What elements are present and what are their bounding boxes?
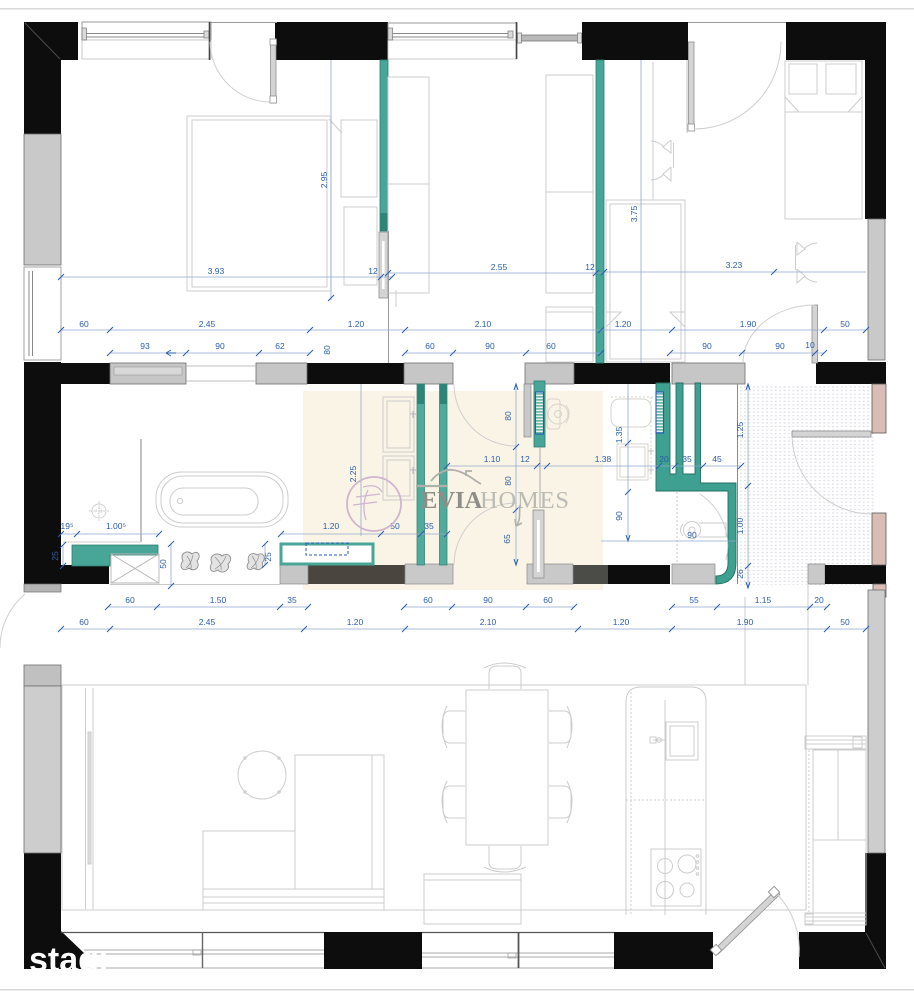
svg-text:12: 12: [585, 262, 595, 272]
svg-text:20: 20: [659, 454, 669, 464]
svg-text:25: 25: [50, 551, 60, 561]
svg-text:2.10: 2.10: [475, 319, 492, 329]
svg-text:1.35: 1.35: [614, 426, 624, 443]
svg-text:1.20: 1.20: [615, 319, 632, 329]
svg-text:1.50: 1.50: [210, 595, 227, 605]
svg-text:3.75: 3.75: [629, 205, 639, 222]
svg-text:62: 62: [275, 341, 285, 351]
svg-text:1.10: 1.10: [484, 454, 501, 464]
svg-text:1.90: 1.90: [737, 617, 754, 627]
svg-text:1.25: 1.25: [735, 421, 745, 438]
svg-text:1.38: 1.38: [595, 454, 612, 464]
svg-text:2.25: 2.25: [348, 465, 358, 482]
svg-text:60: 60: [543, 595, 553, 605]
svg-text:26: 26: [735, 569, 745, 579]
svg-text:90: 90: [483, 595, 493, 605]
svg-text:80: 80: [503, 476, 513, 486]
svg-text:93: 93: [140, 341, 150, 351]
svg-text:2.45: 2.45: [199, 617, 216, 627]
svg-text:1.90: 1.90: [740, 319, 757, 329]
svg-text:HOMES: HOMES: [480, 487, 570, 514]
svg-text:1.20: 1.20: [348, 319, 365, 329]
svg-text:50: 50: [390, 521, 400, 531]
svg-text:EVIA: EVIA: [421, 487, 483, 514]
svg-text:90: 90: [614, 511, 624, 521]
svg-text:60: 60: [546, 341, 556, 351]
svg-text:3.23: 3.23: [726, 260, 743, 270]
svg-text:19⁵: 19⁵: [61, 521, 74, 531]
svg-text:90: 90: [485, 341, 495, 351]
svg-text:35: 35: [682, 454, 692, 464]
svg-text:35: 35: [424, 521, 434, 531]
svg-text:60: 60: [125, 595, 135, 605]
svg-text:50: 50: [158, 559, 168, 569]
svg-text:50: 50: [840, 617, 850, 627]
svg-text:2.95: 2.95: [319, 171, 329, 188]
svg-text:50: 50: [840, 319, 850, 329]
svg-text:10: 10: [805, 340, 815, 350]
svg-text:90: 90: [687, 530, 697, 540]
svg-text:2.45: 2.45: [199, 319, 216, 329]
svg-text:stagi: stagi: [29, 941, 108, 979]
svg-text:3.93: 3.93: [208, 266, 225, 276]
svg-text:80: 80: [322, 345, 332, 355]
svg-text:60: 60: [423, 595, 433, 605]
svg-text:60: 60: [79, 319, 89, 329]
svg-text:1.00⁵: 1.00⁵: [106, 521, 126, 531]
svg-text:2.10: 2.10: [480, 617, 497, 627]
svg-text:1.15: 1.15: [755, 595, 772, 605]
svg-text:55: 55: [689, 595, 699, 605]
svg-text:90: 90: [215, 341, 225, 351]
svg-text:65: 65: [502, 534, 512, 544]
svg-text:90: 90: [775, 341, 785, 351]
svg-text:12: 12: [520, 454, 530, 464]
svg-text:1.00: 1.00: [735, 517, 745, 534]
svg-text:1.20: 1.20: [323, 521, 340, 531]
svg-text:35: 35: [287, 595, 297, 605]
svg-text:90: 90: [702, 341, 712, 351]
svg-text:25: 25: [263, 552, 273, 562]
svg-text:20: 20: [814, 595, 824, 605]
svg-text:60: 60: [79, 617, 89, 627]
svg-text:1.20: 1.20: [347, 617, 364, 627]
svg-text:60: 60: [425, 341, 435, 351]
svg-text:2.55: 2.55: [491, 262, 508, 272]
svg-text:12: 12: [368, 266, 378, 276]
svg-text:1.20: 1.20: [613, 617, 630, 627]
svg-text:80: 80: [503, 411, 513, 421]
svg-text:45: 45: [712, 454, 722, 464]
